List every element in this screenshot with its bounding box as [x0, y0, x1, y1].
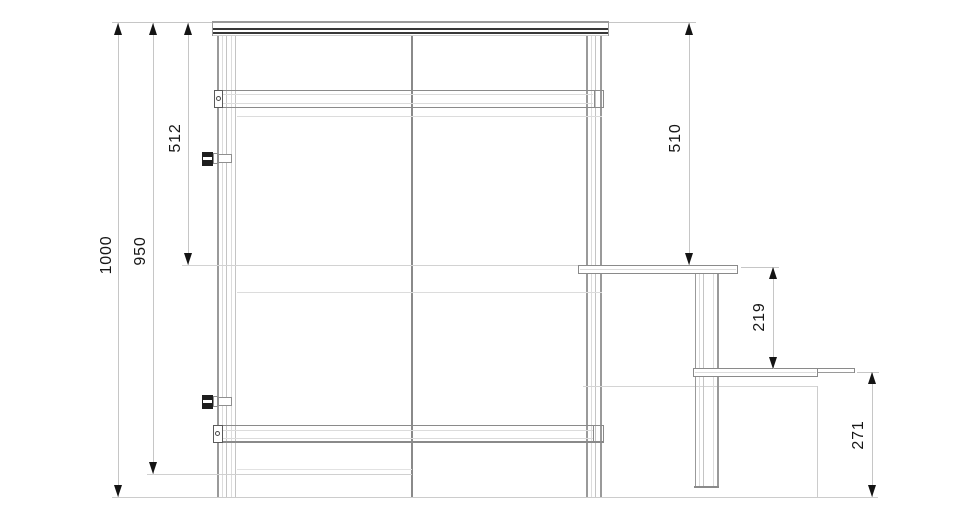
top-cap-dark-band	[212, 28, 609, 30]
rail-inner-line	[223, 430, 593, 431]
arrow-down	[184, 253, 192, 265]
dim-label-219: 219	[750, 287, 770, 347]
arrow-down	[868, 485, 876, 497]
lower-worktop-overhang-edge	[854, 368, 855, 374]
rail-edge	[213, 425, 603, 427]
top-cap-right-edge	[608, 21, 609, 36]
rail-edge	[214, 107, 603, 109]
bolt-slot	[203, 157, 212, 160]
arrow-up	[769, 267, 777, 279]
elevation-drawing: 1000 950 512 510 219 271	[0, 0, 980, 522]
dim-line-219	[773, 267, 774, 370]
arrow-down	[769, 357, 777, 369]
counter-post-line	[717, 273, 719, 487]
panel-line	[583, 386, 817, 387]
counter-post-line	[703, 273, 704, 487]
rail-edge	[214, 90, 603, 92]
extension-line-top-right	[609, 22, 696, 23]
panel-line	[237, 116, 602, 117]
base-cabinet-right-edge	[817, 386, 818, 497]
top-cap-bottom-line	[212, 35, 609, 36]
dim-line-950	[153, 23, 154, 474]
lower-worktop-overhang-bottom	[818, 372, 854, 373]
arrow-up	[184, 23, 192, 35]
rail-edge	[213, 441, 603, 443]
dim-label-1000: 1000	[97, 225, 117, 285]
counter-post-line	[699, 273, 700, 487]
arrow-down	[685, 253, 693, 265]
panel-line	[237, 292, 602, 293]
extension-line-top-left	[112, 22, 212, 23]
rail-end-cap-right	[594, 90, 604, 109]
dim-line-510	[689, 23, 690, 265]
extension-line-512	[182, 265, 578, 266]
arrow-down	[149, 462, 157, 474]
lower-worktop-overhang-top	[817, 368, 855, 370]
top-cap-left-edge	[212, 21, 213, 36]
counter-post-line	[713, 273, 714, 487]
bolt-shaft	[218, 397, 232, 406]
arrow-up	[685, 23, 693, 35]
left-post-line	[235, 36, 236, 497]
dim-label-950: 950	[131, 221, 151, 281]
bolt-slot	[203, 400, 212, 403]
dim-label-510: 510	[666, 108, 686, 168]
upper-worktop-inner-line	[580, 269, 736, 270]
middle-divider	[411, 36, 413, 497]
arrow-up	[149, 23, 157, 35]
dim-label-271: 271	[849, 405, 869, 465]
left-post-line	[231, 36, 232, 497]
panel-bottom-line	[147, 474, 412, 475]
arrow-up	[868, 372, 876, 384]
dim-line-271	[872, 372, 873, 498]
counter-post-line	[695, 273, 697, 487]
arrow-down	[114, 485, 122, 497]
dim-line-512	[188, 23, 189, 265]
top-cap-top-edge	[212, 21, 609, 23]
rail-inner-line	[223, 438, 593, 439]
counter-post-foot	[694, 486, 719, 488]
extension-line-floor	[112, 497, 878, 498]
bolt-shaft	[218, 154, 232, 163]
rail-inner-line	[223, 103, 593, 104]
left-post-line	[226, 36, 227, 497]
lower-worktop-inner-line	[695, 372, 816, 373]
panel-line	[237, 469, 412, 470]
arrow-up	[114, 23, 122, 35]
rail-end-cap-right	[593, 425, 604, 443]
dim-line-1000	[118, 23, 119, 497]
dim-label-512: 512	[166, 108, 186, 168]
top-cap-dark-band	[212, 32, 609, 34]
rail-inner-line	[223, 94, 593, 95]
